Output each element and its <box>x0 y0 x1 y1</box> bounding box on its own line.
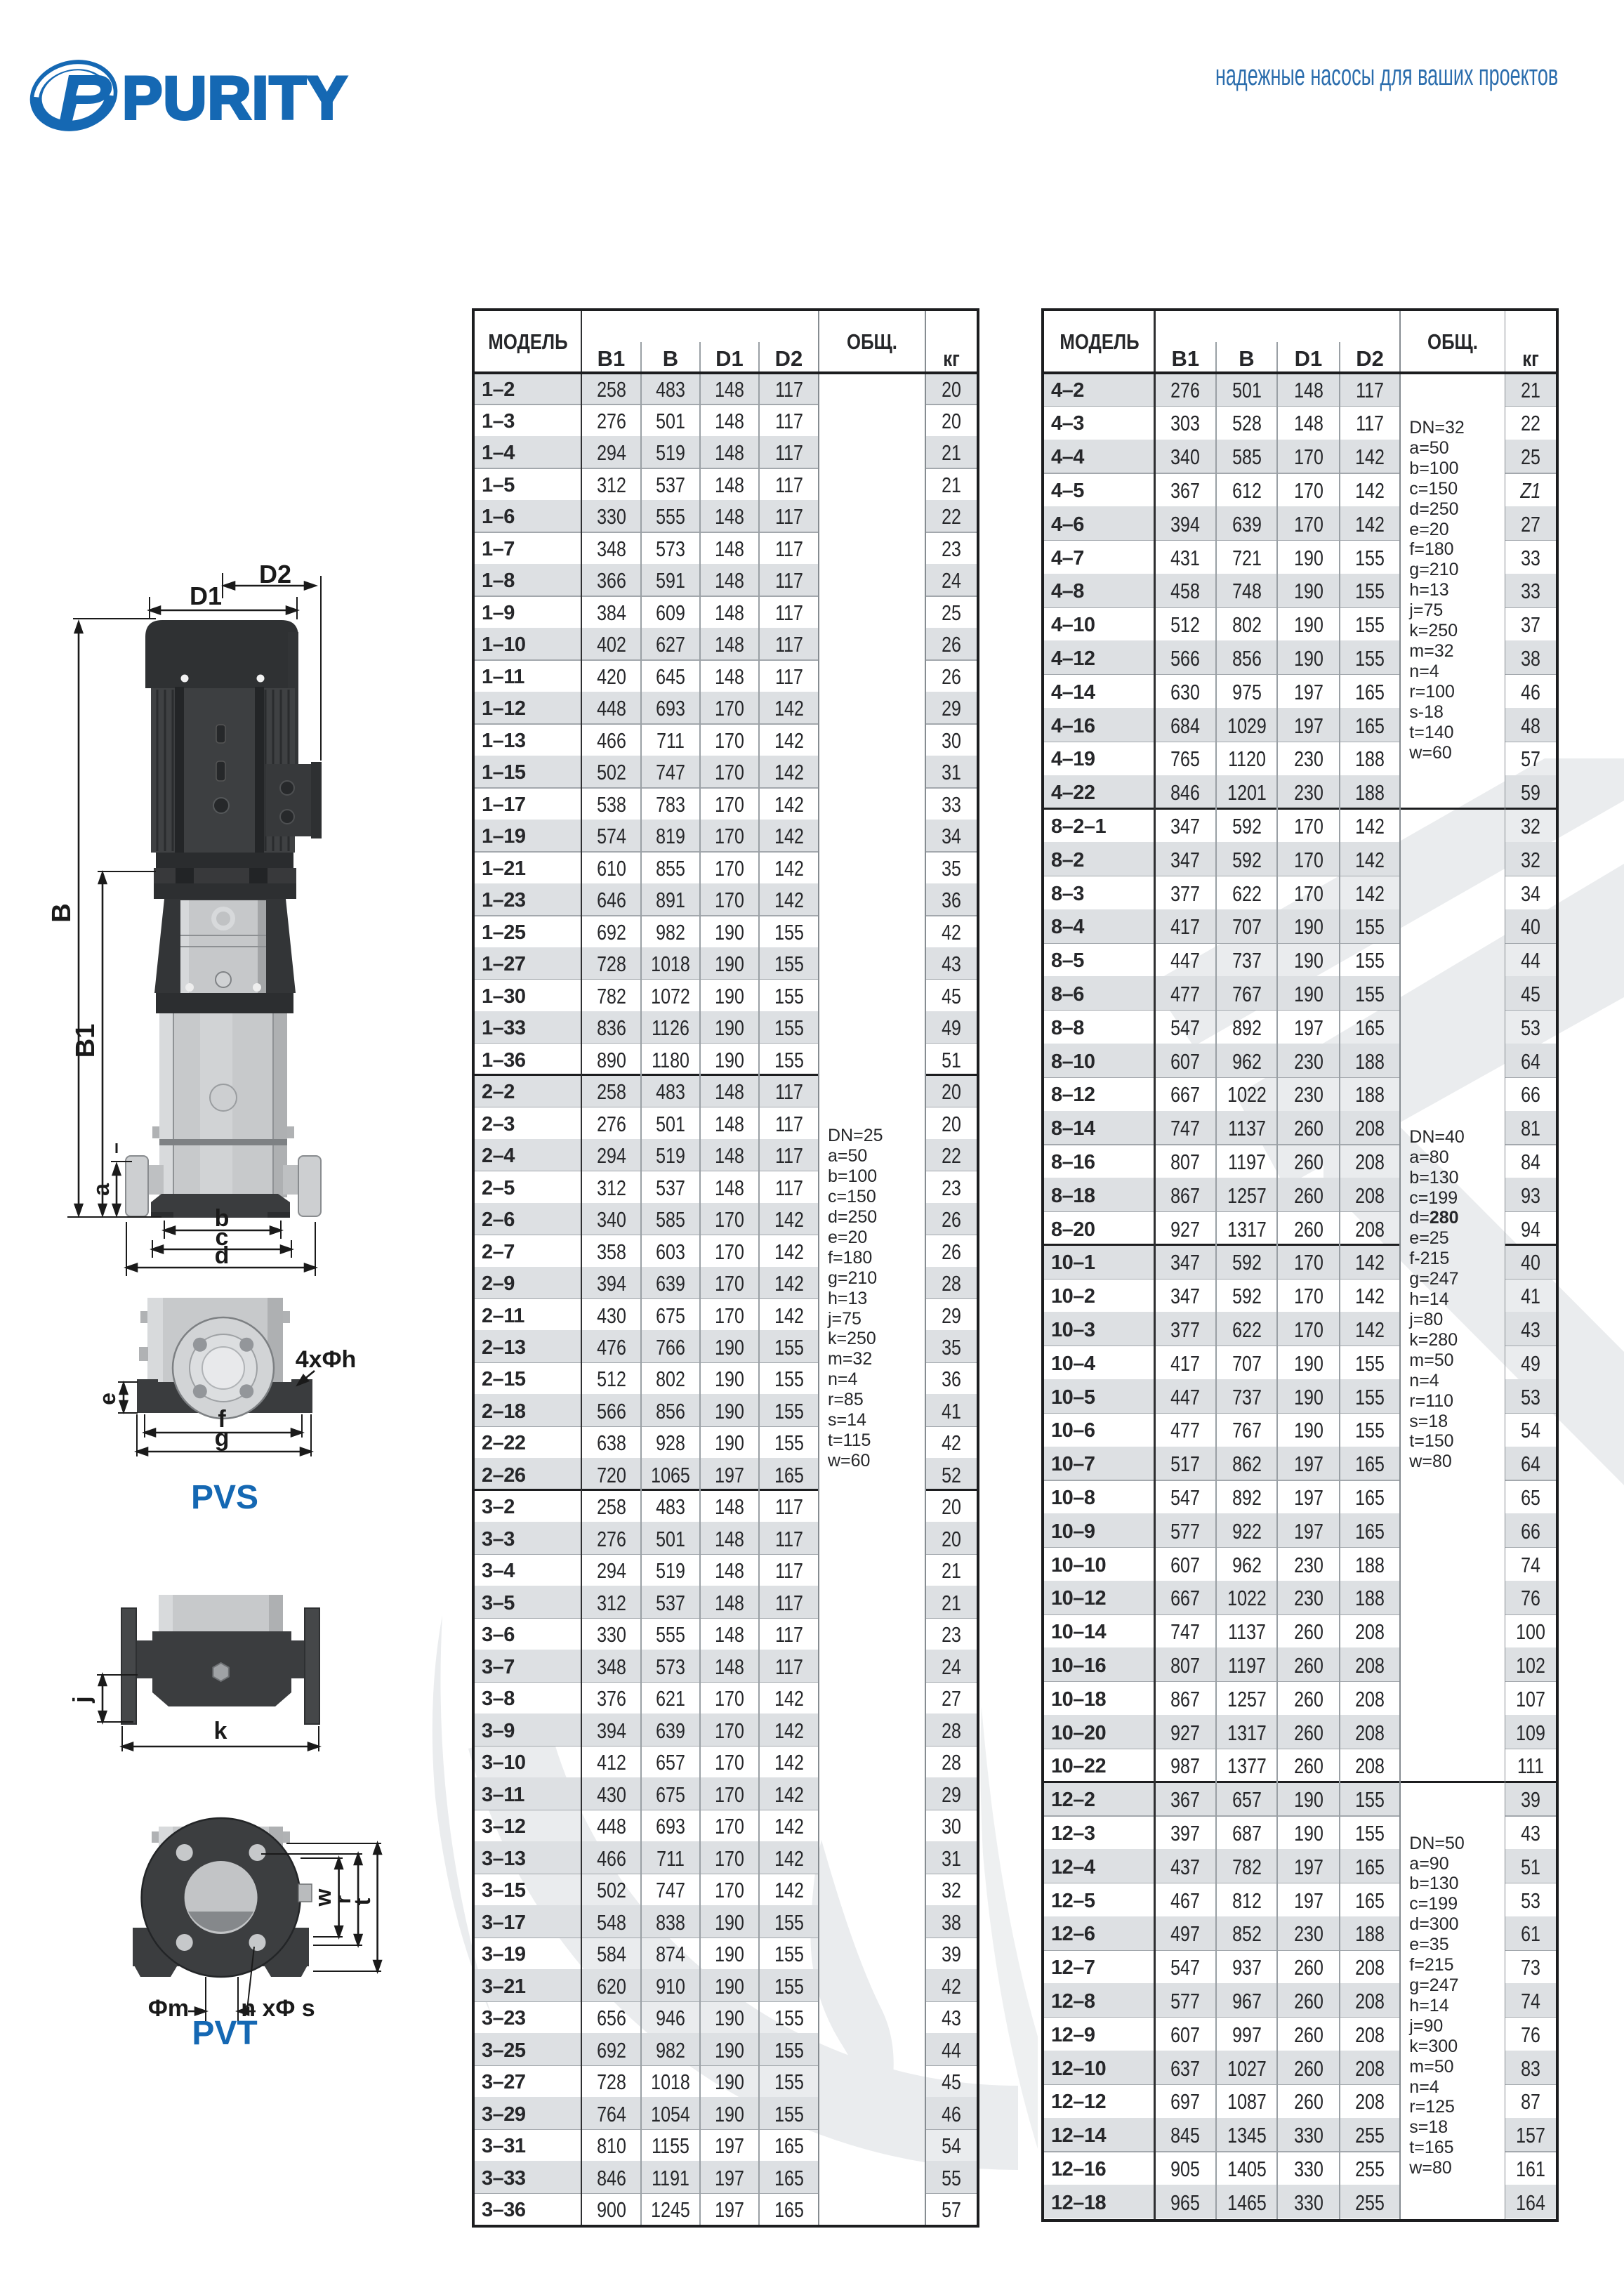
svg-text:B1: B1 <box>71 1024 100 1058</box>
svg-text:a: a <box>88 1183 114 1196</box>
svg-text:PVS: PVS <box>191 1479 258 1516</box>
svg-text:e: e <box>95 1393 120 1405</box>
svg-text:t: t <box>350 1897 375 1905</box>
svg-text:g: g <box>215 1425 230 1452</box>
svg-text:d: d <box>215 1242 230 1269</box>
svg-text:PURITY: PURITY <box>122 65 348 132</box>
svg-text:D2: D2 <box>259 560 291 588</box>
svg-text:j: j <box>69 1696 95 1703</box>
svg-text:PVT: PVT <box>192 2015 257 2052</box>
svg-text:B: B <box>47 903 77 922</box>
svg-text:4xΦh: 4xΦh <box>296 1346 357 1373</box>
svg-text:k: k <box>214 1718 227 1744</box>
svg-text:Φm: Φm <box>148 1995 189 2022</box>
svg-text:D1: D1 <box>190 581 222 610</box>
